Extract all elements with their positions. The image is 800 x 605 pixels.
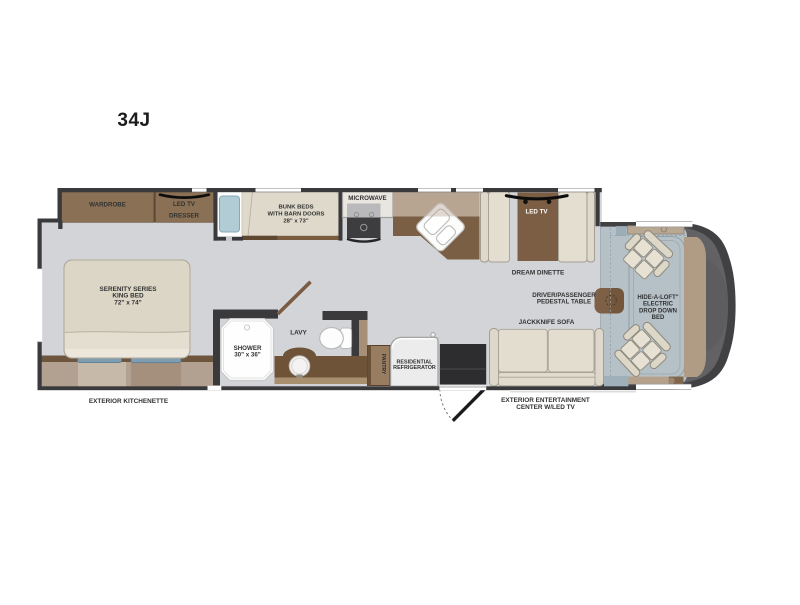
svg-text:HIDE-A-LOFT": HIDE-A-LOFT": [637, 295, 678, 301]
svg-text:BED: BED: [652, 315, 665, 321]
svg-text:DRESSER: DRESSER: [169, 212, 199, 219]
svg-text:WARDROBE: WARDROBE: [89, 202, 126, 209]
svg-text:JACKKNIFE SOFA: JACKKNIFE SOFA: [519, 319, 575, 326]
svg-text:CENTER W/LED TV: CENTER W/LED TV: [516, 404, 575, 411]
svg-text:PEDESTAL TABLE: PEDESTAL TABLE: [537, 299, 591, 306]
svg-text:BUNK BEDS: BUNK BEDS: [278, 205, 313, 211]
svg-text:DROP DOWN: DROP DOWN: [639, 308, 677, 314]
svg-text:LED TV: LED TV: [525, 209, 548, 216]
svg-text:ELECTRIC: ELECTRIC: [643, 302, 674, 308]
svg-text:34J: 34J: [117, 110, 150, 131]
svg-text:DREAM DINETTE: DREAM DINETTE: [512, 269, 565, 276]
svg-text:EXTERIOR ENTERTAINMENT: EXTERIOR ENTERTAINMENT: [501, 397, 590, 404]
svg-text:REFRIGERATOR: REFRIGERATOR: [393, 365, 436, 371]
svg-text:72" x 74": 72" x 74": [114, 299, 141, 306]
svg-text:LAVY: LAVY: [290, 329, 307, 336]
svg-text:EXTERIOR KITCHENETTE: EXTERIOR KITCHENETTE: [89, 398, 169, 405]
svg-text:28" x 73": 28" x 73": [283, 218, 308, 224]
svg-text:PANTRY: PANTRY: [380, 354, 386, 375]
svg-text:MICROWAVE: MICROWAVE: [348, 195, 386, 202]
svg-text:LED TV: LED TV: [173, 201, 196, 208]
svg-text:30" x 36": 30" x 36": [234, 352, 261, 359]
svg-text:WITH BARN DOORS: WITH BARN DOORS: [268, 212, 325, 218]
